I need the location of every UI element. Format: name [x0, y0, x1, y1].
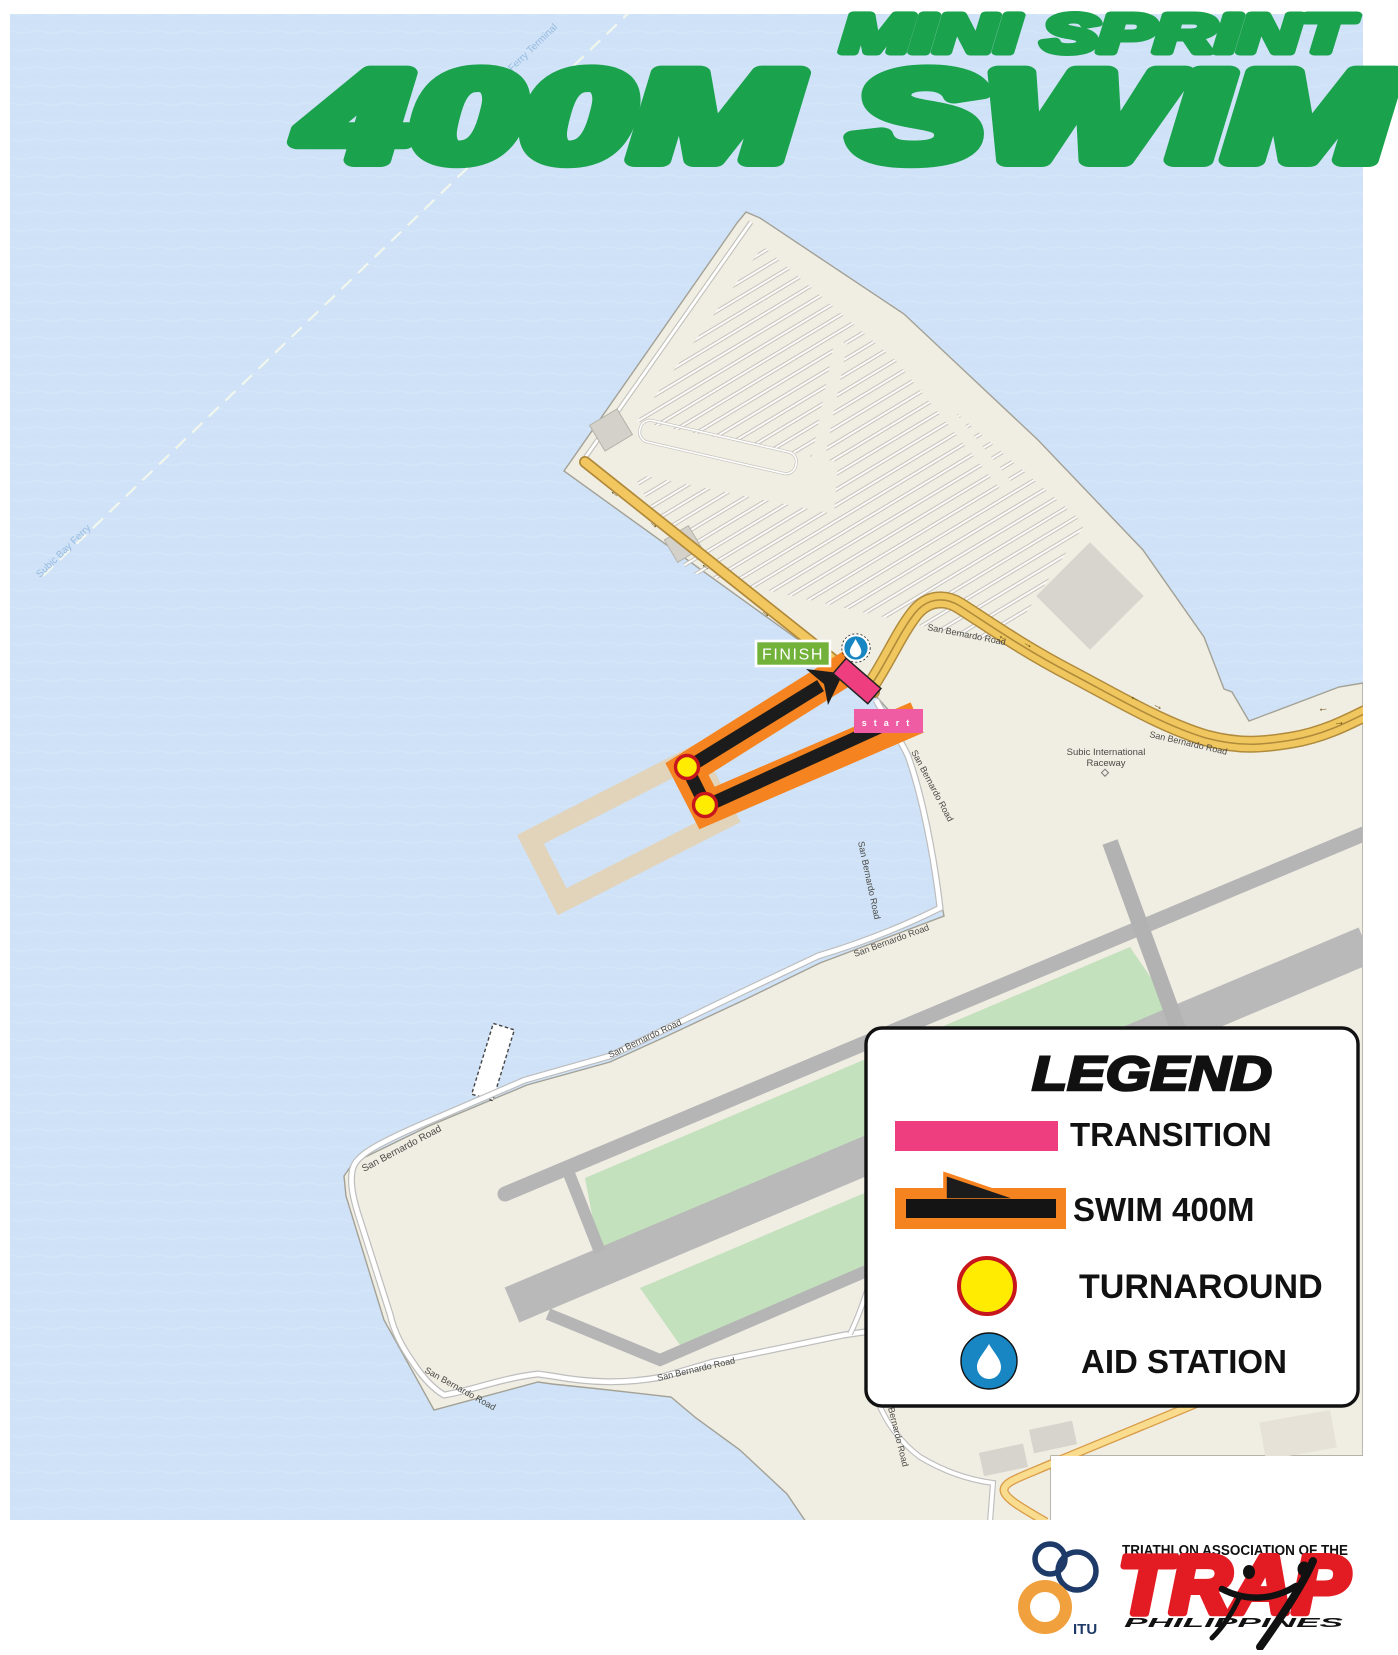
svg-text:FINISH: FINISH	[762, 647, 824, 664]
svg-text:Raceway: Raceway	[1086, 758, 1125, 769]
svg-text:SWIM 400M: SWIM 400M	[1073, 1191, 1255, 1228]
svg-text:→: →	[1333, 716, 1346, 729]
svg-text:Subic International: Subic International	[1067, 747, 1146, 758]
svg-text:ITU: ITU	[1073, 1621, 1097, 1638]
svg-text:TRANSITION: TRANSITION	[1070, 1116, 1272, 1153]
svg-text:400M SWIM: 400M SWIM	[296, 45, 1396, 187]
svg-text:AID STATION: AID STATION	[1081, 1343, 1287, 1380]
svg-text:←: ←	[1317, 702, 1330, 715]
svg-text:TURNAROUND: TURNAROUND	[1079, 1268, 1323, 1306]
svg-text:LEGEND: LEGEND	[1032, 1048, 1272, 1101]
svg-text:PHILIPPINES: PHILIPPINES	[1124, 1615, 1344, 1630]
svg-text:start: start	[862, 718, 917, 728]
